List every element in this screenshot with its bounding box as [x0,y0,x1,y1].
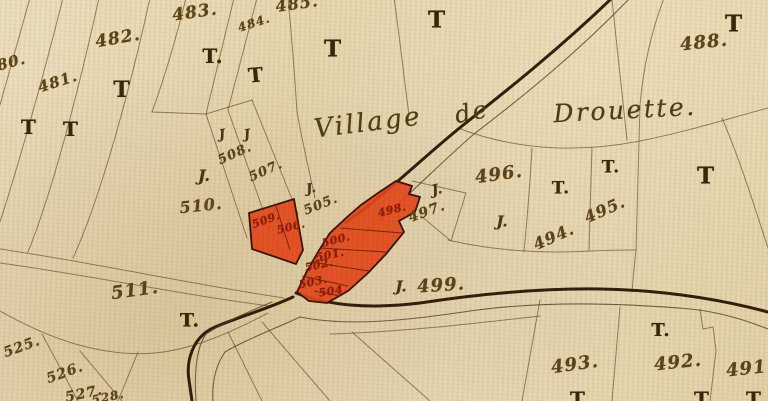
tenure-mark-T: T. [651,322,670,340]
parcel-number-482: 482. [94,27,142,52]
parcel-number-481: 481. [36,69,79,96]
tenure-mark-T: T. [602,160,620,177]
tenure-mark-T: T [63,119,79,139]
village-name-part: Drouette. [553,94,697,126]
labels-layer: 480.481.482.483.484.485.488.491.492.493.… [0,0,768,401]
tenure-mark-T: T [113,79,130,101]
tenure-mark-T: T [570,389,586,401]
parcel-number-507: 507. [247,158,285,184]
village-name-part: de [453,97,492,128]
building-number-498: 498. [377,201,408,219]
parcel-number-492: 492. [653,352,702,375]
tenure-mark-J: J [243,128,251,142]
parcel-number-497: 497. [407,199,448,225]
tenure-mark-J: J. [430,182,443,198]
parcel-number-483: 483. [171,1,218,24]
tenure-mark-T: T [21,117,37,137]
cadastral-map: 480.481.482.483.484.485.488.491.492.493.… [0,0,768,401]
tenure-mark-T: T. [180,312,200,331]
parcel-number-493: 493. [550,353,600,377]
parcel-number-511: 511. [110,279,160,303]
tenure-mark-J: J. [198,168,210,184]
parcel-number-526: 526. [45,360,86,386]
parcel-number-491: 491. [725,358,768,381]
tenure-mark-T: T [324,38,342,61]
village-name-part: Village [313,103,424,142]
tenure-mark-J: J. [395,280,406,295]
tenure-mark-T: T [247,64,265,85]
parcel-number-525: 525. [2,334,43,360]
tenure-mark-J: J. [496,215,507,230]
parcel-number-499: 499. [417,275,466,296]
tenure-mark-T: T [694,389,710,401]
building-number-502: 502. [304,257,334,274]
parcel-number-510: 510. [179,196,223,216]
parcel-number-496: 496. [474,163,524,187]
parcel-number-495: 495. [582,194,628,226]
tenure-mark-T: T. [552,181,570,198]
tenure-mark-T: T [725,13,743,36]
parcel-number-508: 508. [216,141,254,167]
tenure-mark-J: J. [305,182,317,196]
parcel-number-488: 488. [679,32,728,55]
building-number-504: 504. [318,284,348,299]
tenure-mark-T: T [746,389,762,401]
parcel-number-485: 485. [275,0,320,15]
tenure-mark-T: T [428,9,446,32]
tenure-mark-J: J [218,128,226,142]
tenure-mark-T: T. [202,46,223,66]
parcel-number-494: 494. [531,221,577,253]
tenure-mark-T: T [697,165,715,188]
parcel-number-480: 480. [0,52,28,77]
parcel-number-484: 484. [236,12,271,34]
